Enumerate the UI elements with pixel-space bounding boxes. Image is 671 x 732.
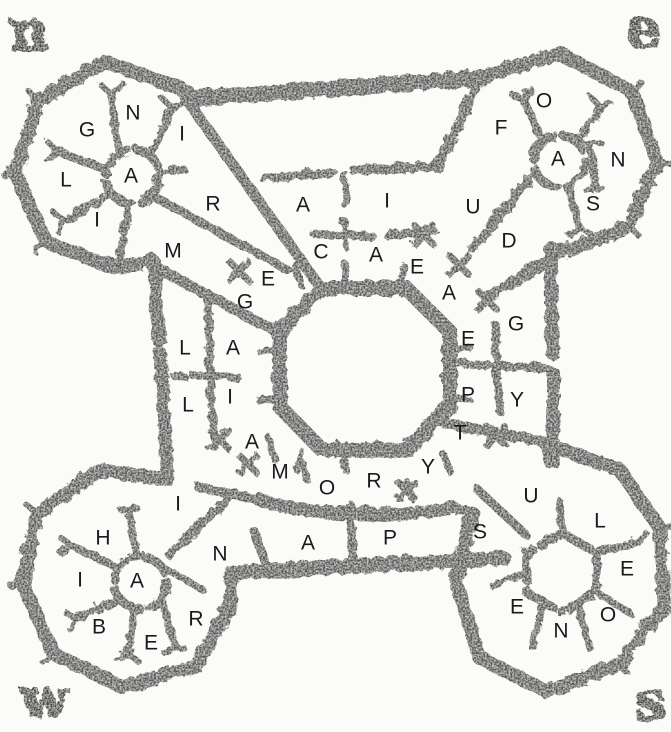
room-letter-nw-bastion: A [124, 165, 138, 188]
room-letter-north-block: A [369, 244, 383, 267]
room-letter-east-block: P [461, 384, 475, 407]
compass-label-se: s [634, 667, 663, 731]
room-letter-west-block: E [261, 268, 275, 291]
room-letter-nw-gallery: R [205, 193, 220, 216]
scanned-plan-page: NGILAIRMAICAEUDOFANSEGLALIAEGPYTAMORYAPI… [0, 0, 671, 732]
room-letter-east-block: Y [510, 389, 524, 412]
room-letter-east-block: E [461, 328, 475, 351]
room-letter-ne-bastion: F [495, 117, 508, 140]
room-letter-ne-gallery: D [501, 230, 516, 253]
wall-segment [191, 373, 237, 376]
room-letter-sw-bastion: H [95, 527, 110, 550]
room-letter-north-block: E [410, 256, 424, 279]
room-letter-south-arc: Y [421, 456, 435, 479]
wall-segment [590, 144, 593, 186]
room-letter-south-arc: A [245, 431, 259, 454]
wall-segment [546, 446, 549, 461]
room-letter-ne-bastion: A [551, 148, 565, 171]
room-letter-nw-bastion: L [60, 169, 72, 192]
compass-label-nw: n [8, 0, 47, 61]
room-letter-ne-bastion: N [610, 149, 625, 172]
room-letter-sw-gallery: N [212, 543, 227, 566]
room-letter-nw-gallery: M [164, 240, 182, 263]
room-letter-ne-bastion: O [536, 90, 552, 113]
fortress-plan-figure: NGILAIRMAICAEUDOFANSEGLALIAEGPYTAMORYAPI… [0, 0, 671, 732]
wall-segment [119, 506, 135, 508]
room-letter-sw-bastion: A [130, 570, 144, 593]
room-letter-se-bastion: E [620, 558, 634, 581]
wall-segment [343, 219, 345, 246]
room-letter-nw-bastion: I [94, 209, 100, 232]
room-letter-nw-bastion: N [125, 102, 140, 125]
room-letter-se-bastion: O [600, 604, 616, 627]
room-letter-nw-bastion: I [179, 123, 185, 146]
room-letter-east-block: G [508, 313, 524, 336]
room-letter-west-block: G [237, 291, 253, 314]
room-letter-sw-gallery: I [175, 493, 181, 516]
room-letter-south-row: A [301, 532, 315, 555]
compass-label-ne: e [625, 0, 657, 59]
room-letter-sw-bastion: I [77, 569, 83, 592]
room-letter-south-arc: O [319, 477, 335, 500]
room-letter-north-block: I [384, 190, 390, 213]
room-letter-west-block: A [226, 337, 240, 360]
wall-segment [456, 362, 546, 367]
wall-segment [549, 249, 552, 461]
room-letter-south-arc: R [366, 470, 381, 493]
wall-segment [349, 503, 352, 566]
room-letter-west-block: I [227, 386, 233, 409]
wall-segment [462, 558, 502, 559]
room-letter-nw-bastion: G [79, 119, 95, 142]
room-letter-ne-bastion: S [586, 193, 600, 216]
room-letter-east-block: T [454, 422, 467, 445]
room-letter-sw-bastion: R [188, 608, 203, 631]
room-letter-se-gallery: S [473, 521, 487, 544]
room-letter-se-bastion: L [594, 510, 606, 533]
room-letter-north-block: A [296, 194, 310, 217]
wall-segment [343, 172, 345, 205]
room-letter-ne-gallery: U [465, 196, 480, 219]
room-letter-north-block: C [313, 241, 328, 264]
room-letter-sw-bastion: E [144, 632, 158, 655]
room-letter-east-block: A [442, 282, 456, 305]
room-letter-south-row: P [383, 527, 397, 550]
room-letter-se-bastion: E [510, 596, 524, 619]
room-letter-west-block: L [182, 394, 194, 417]
room-letter-south-arc: M [271, 461, 289, 484]
room-letter-west-block: L [179, 337, 191, 360]
room-letter-se-bastion: N [553, 620, 568, 643]
wall-segment [172, 374, 183, 375]
compass-label-sw: w [19, 665, 68, 729]
room-letter-sw-bastion: B [92, 616, 106, 639]
room-letter-se-gallery: U [523, 485, 538, 508]
